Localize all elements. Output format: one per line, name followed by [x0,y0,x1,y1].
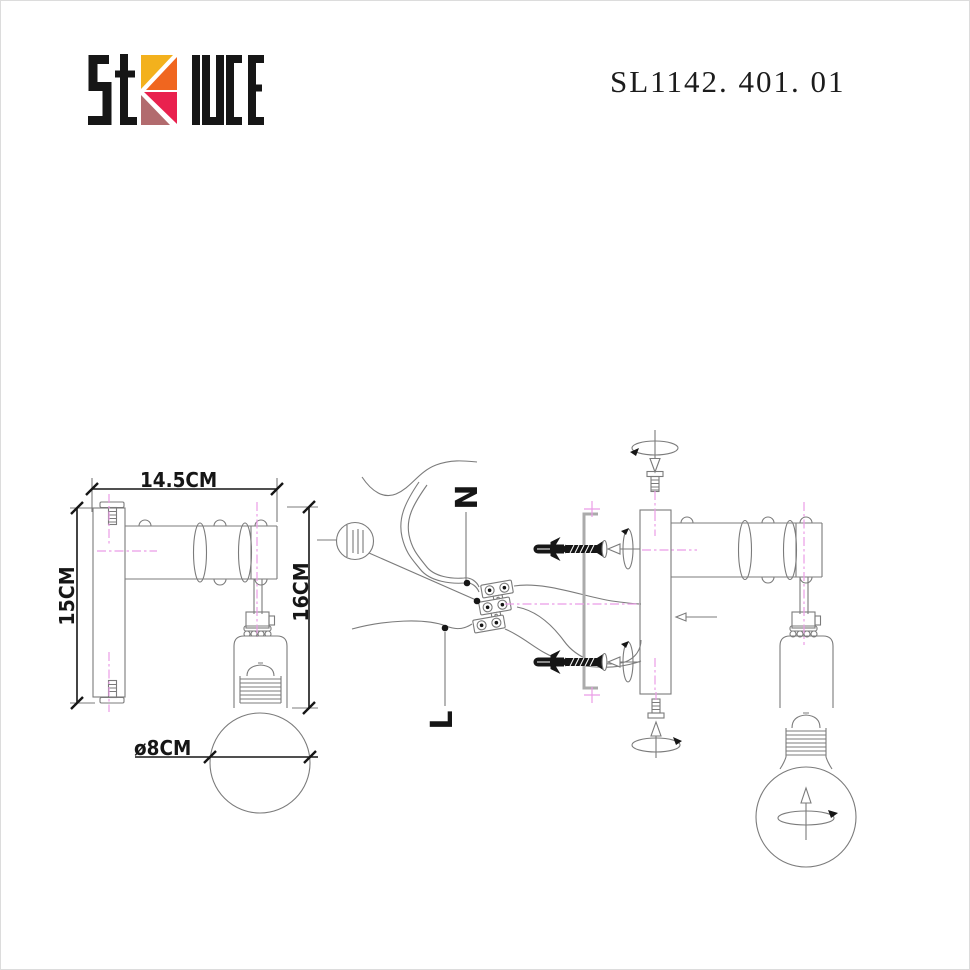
terminal-block [473,580,515,633]
dim-label-plate-height: 15CM [55,574,79,625]
wire-label-leaders [442,512,481,706]
socket-assembly [234,579,287,708]
wall-screw-bottom [561,641,640,682]
left-dimensioned-view [70,478,318,813]
lamp-arm [125,520,277,585]
installation-diagram [317,430,856,867]
mounting-bracket [584,501,600,703]
wall-anchor-top [534,537,565,561]
mounting-screw-top [100,502,124,525]
wire-label-neutral: N [450,477,482,517]
wall-anchor-bottom [534,650,565,674]
lamp-arm-right [671,517,822,621]
socket-assembly-right [780,577,833,708]
cable-splice-symbol [317,523,476,601]
mounting-screw-bottom [100,681,124,704]
bulb-globe [210,713,310,813]
technical-drawing-page: St luce SL1142. 401. 01 [0,0,970,970]
dim-label-width: 14.5CM [140,468,217,492]
centerlines-left [97,494,257,712]
lamp-wires [505,585,641,667]
bottom-fixing-screw [632,699,682,758]
top-fixing-screw [630,430,678,492]
wire-label-live: L [425,700,457,740]
wall-screw-top [561,528,640,569]
dim-label-bulb-diameter: ø8CM [134,736,191,760]
dim-label-drop-height: 16CM [289,570,313,621]
centerlines-right [505,491,804,700]
bulb-right [756,713,856,867]
